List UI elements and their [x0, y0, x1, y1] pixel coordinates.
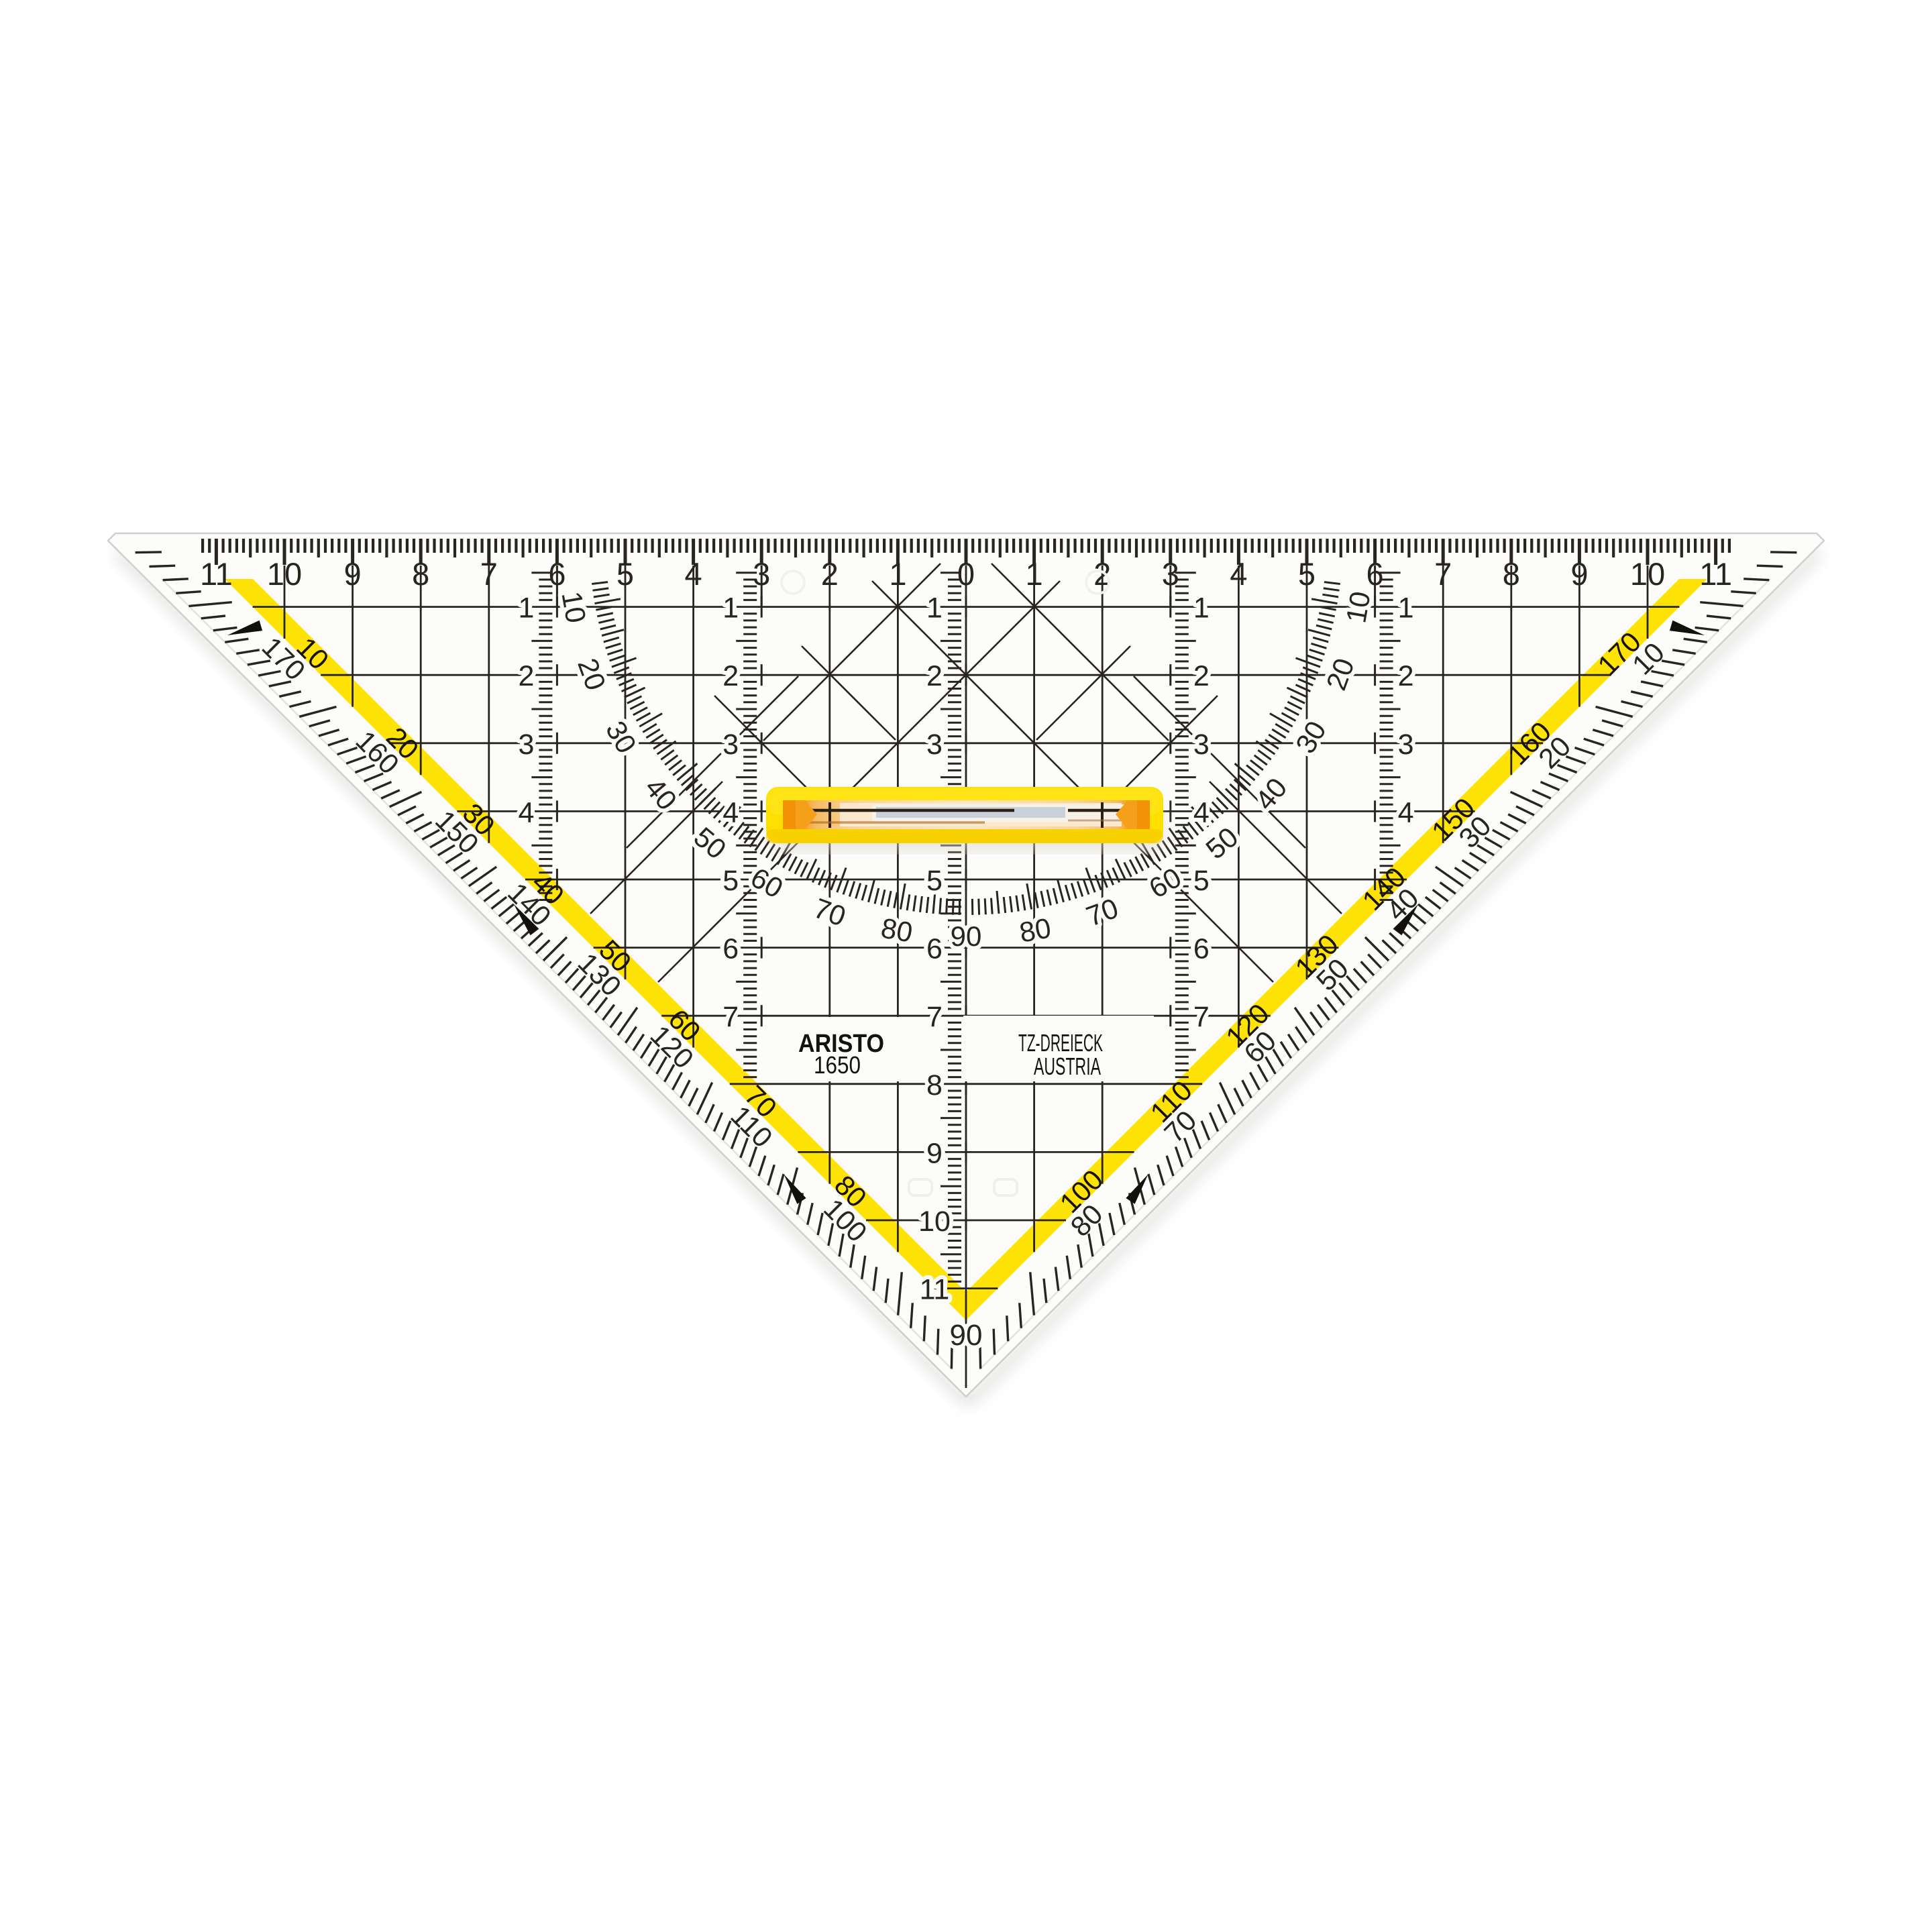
svg-text:4: 4: [1230, 556, 1247, 592]
svg-text:3: 3: [1193, 729, 1210, 761]
svg-text:3: 3: [518, 729, 534, 761]
svg-text:3: 3: [1398, 729, 1414, 761]
svg-text:7: 7: [722, 1001, 739, 1033]
svg-text:5: 5: [616, 556, 634, 592]
svg-text:10: 10: [918, 1205, 951, 1238]
svg-text:3: 3: [753, 556, 770, 592]
svg-text:1: 1: [1026, 556, 1043, 592]
svg-text:4: 4: [722, 796, 739, 828]
svg-text:9: 9: [926, 1137, 943, 1169]
svg-text:7: 7: [480, 556, 498, 592]
svg-text:1650: 1650: [814, 1051, 861, 1079]
svg-text:5: 5: [722, 865, 739, 897]
svg-text:6: 6: [1193, 933, 1210, 965]
svg-text:8: 8: [926, 1069, 943, 1102]
svg-text:8: 8: [1503, 556, 1520, 592]
svg-text:6: 6: [1366, 556, 1384, 592]
svg-text:6: 6: [722, 933, 739, 965]
svg-text:7: 7: [1193, 1001, 1210, 1033]
svg-text:10: 10: [267, 556, 302, 592]
svg-text:1: 1: [722, 592, 739, 625]
svg-text:7: 7: [1434, 556, 1452, 592]
svg-text:80: 80: [1017, 912, 1053, 948]
svg-text:3: 3: [1162, 556, 1179, 592]
svg-text:9: 9: [1570, 556, 1588, 592]
svg-text:4: 4: [1398, 796, 1414, 828]
svg-text:90: 90: [951, 920, 982, 952]
svg-text:11: 11: [1699, 556, 1732, 592]
svg-text:2: 2: [518, 660, 534, 692]
svg-text:6: 6: [926, 933, 943, 965]
svg-text:10: 10: [1340, 589, 1376, 625]
svg-text:1: 1: [518, 592, 534, 625]
svg-text:1: 1: [889, 556, 906, 592]
svg-text:2: 2: [821, 556, 839, 592]
svg-text:4: 4: [685, 556, 702, 592]
svg-text:5: 5: [1193, 865, 1210, 897]
svg-text:1: 1: [926, 592, 943, 625]
svg-text:10: 10: [555, 589, 592, 625]
svg-text:5: 5: [926, 865, 943, 897]
svg-text:6: 6: [548, 556, 566, 592]
svg-text:90: 90: [950, 1319, 983, 1352]
svg-text:2: 2: [926, 660, 943, 692]
svg-text:0: 0: [957, 556, 975, 592]
svg-text:3: 3: [926, 729, 943, 761]
svg-text:11: 11: [920, 1274, 950, 1306]
svg-text:AUSTRIA: AUSTRIA: [1034, 1053, 1101, 1080]
svg-text:5: 5: [1298, 556, 1316, 592]
svg-text:2: 2: [1398, 660, 1414, 692]
svg-text:3: 3: [722, 729, 739, 761]
svg-text:7: 7: [926, 1001, 943, 1033]
svg-text:8: 8: [412, 556, 429, 592]
svg-text:10: 10: [1630, 556, 1665, 592]
svg-text:11: 11: [200, 556, 233, 592]
svg-text:2: 2: [1193, 660, 1210, 692]
svg-text:4: 4: [518, 796, 534, 828]
svg-text:80: 80: [879, 912, 915, 948]
svg-text:4: 4: [1193, 796, 1210, 828]
svg-text:2: 2: [722, 660, 739, 692]
svg-text:1: 1: [1193, 592, 1210, 625]
svg-text:9: 9: [344, 556, 362, 592]
svg-text:1: 1: [1398, 592, 1414, 625]
